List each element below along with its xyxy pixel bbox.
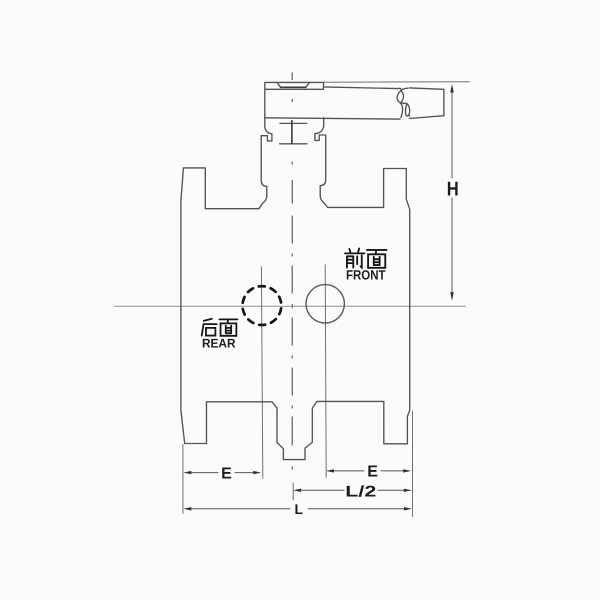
- svg-text:H: H: [447, 179, 459, 201]
- svg-text:FRONT: FRONT: [346, 268, 386, 283]
- svg-text:E: E: [221, 466, 232, 483]
- svg-text:L/2: L/2: [345, 484, 376, 501]
- svg-text:E: E: [367, 463, 378, 480]
- svg-text:L: L: [295, 501, 304, 517]
- svg-text:REAR: REAR: [202, 337, 236, 351]
